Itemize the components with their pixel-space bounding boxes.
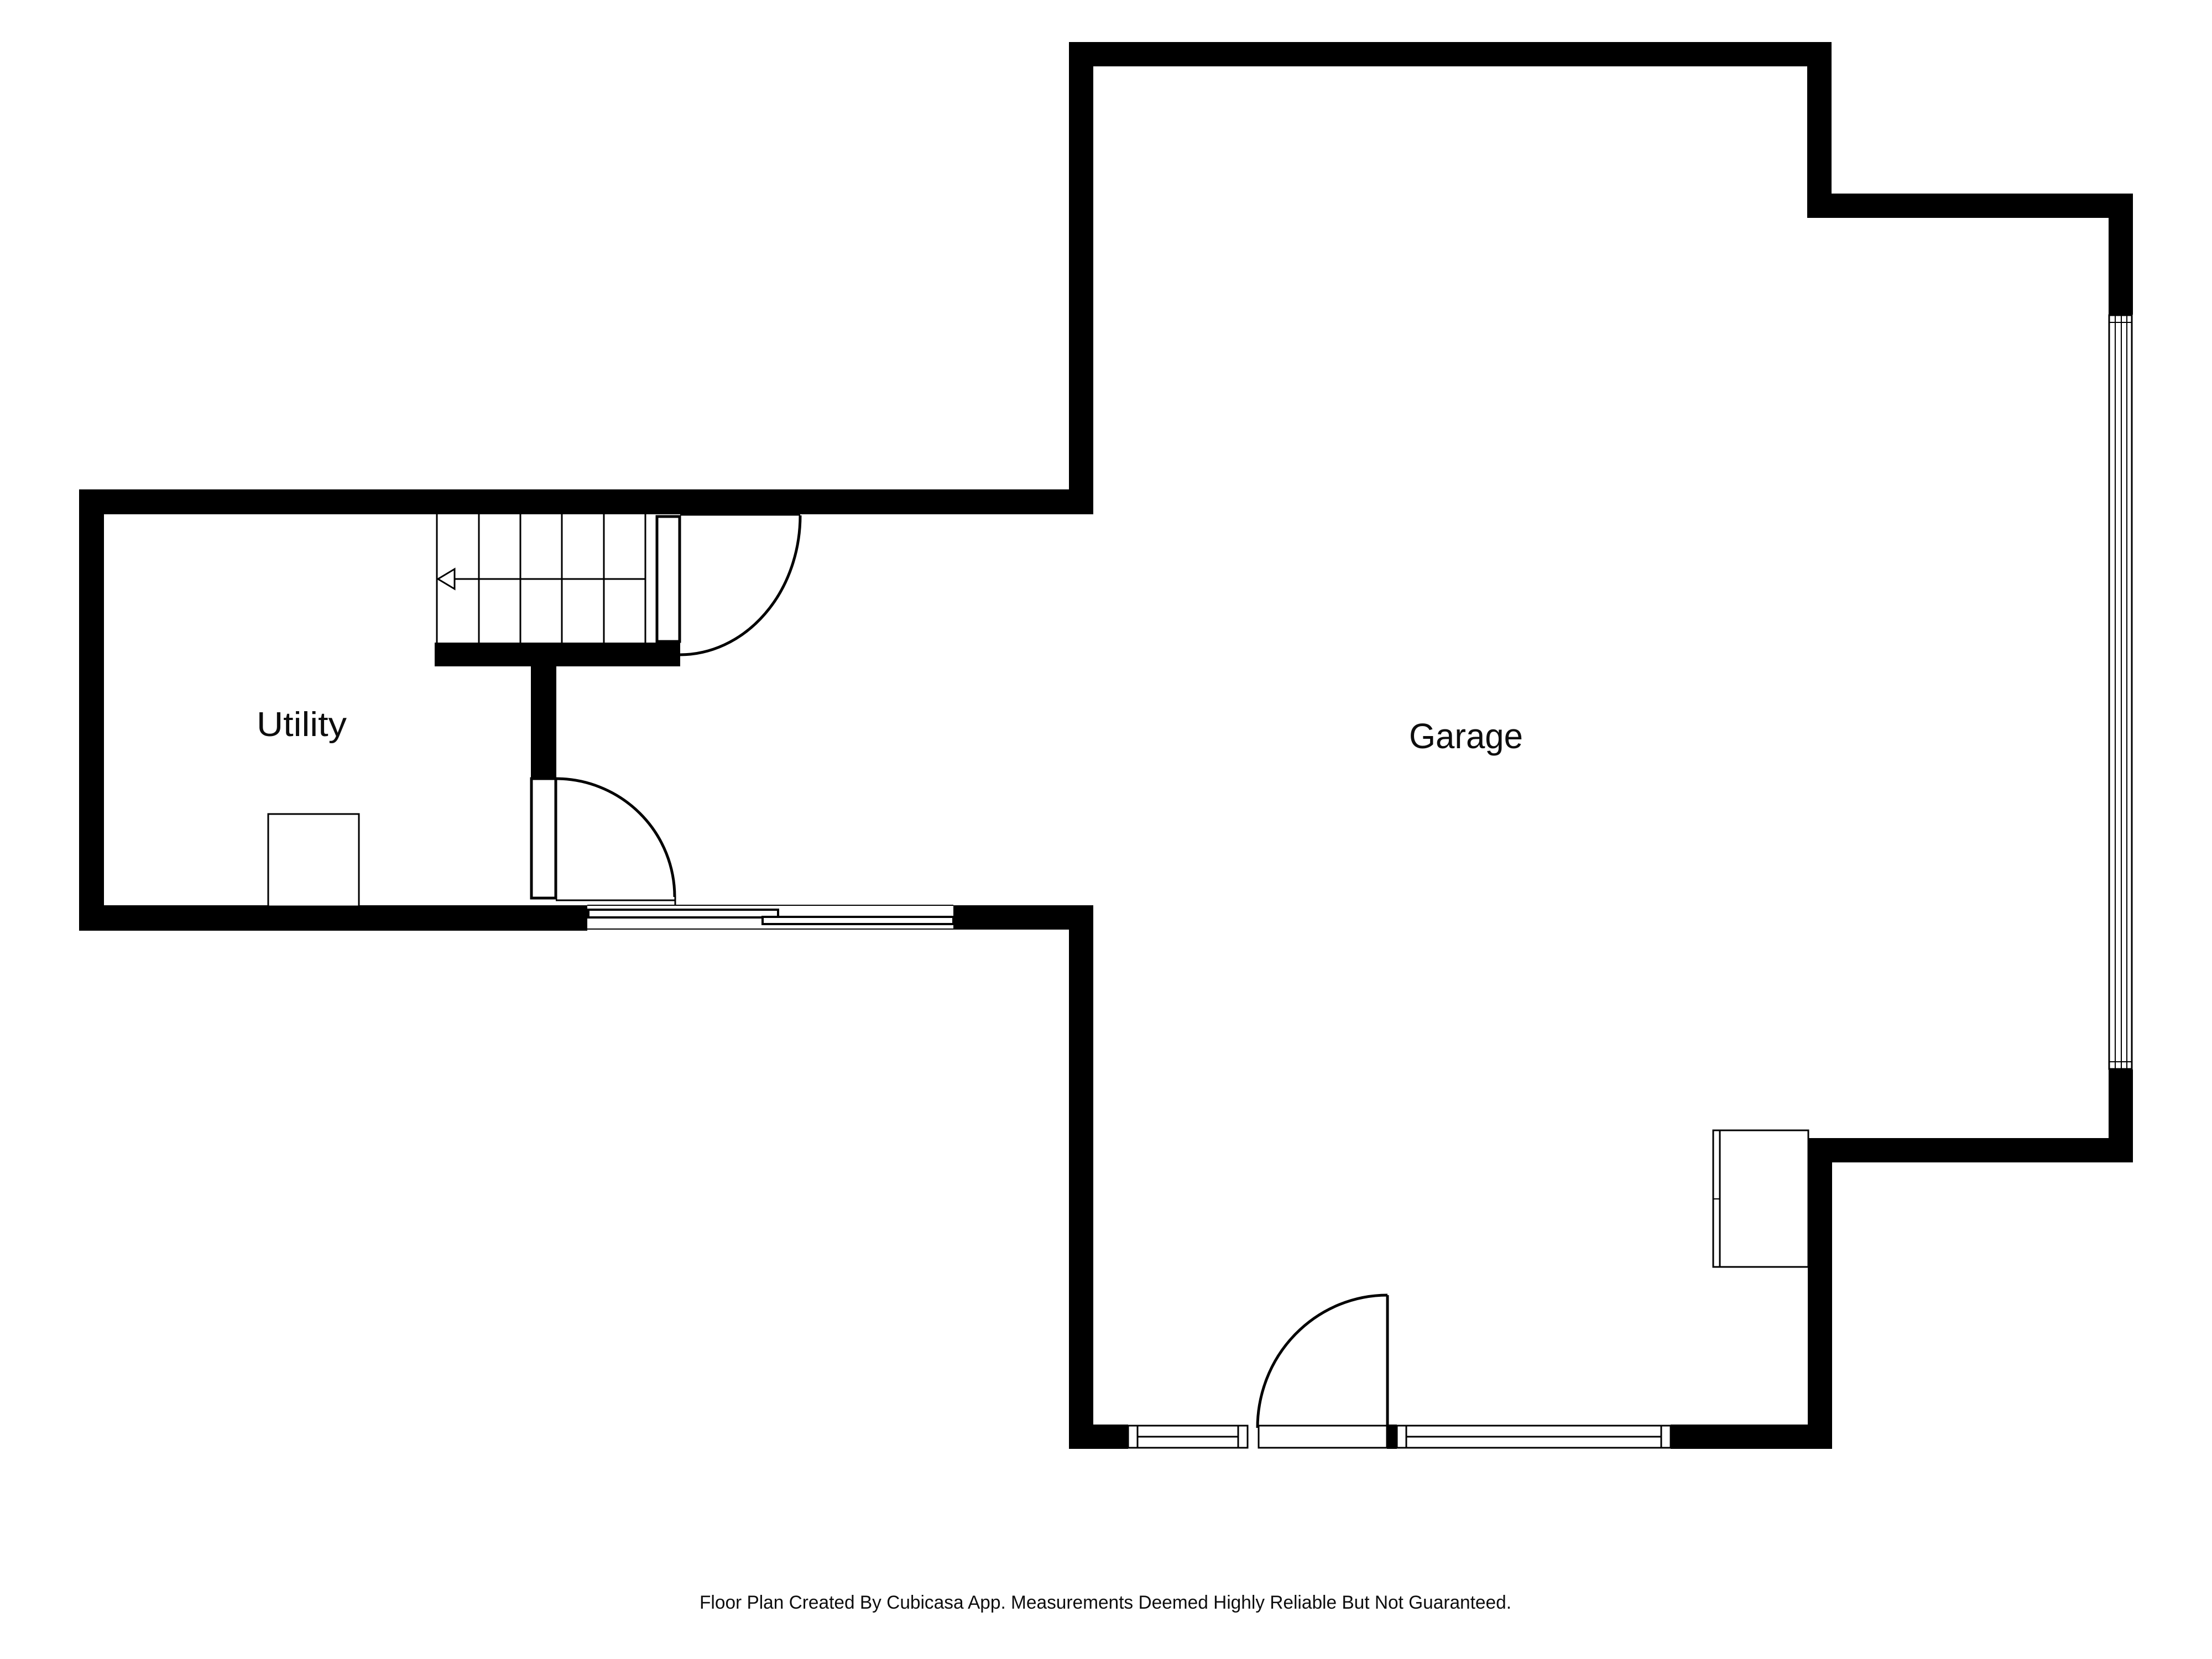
svg-text:Utility: Utility xyxy=(257,706,347,744)
svg-text:Garage: Garage xyxy=(1409,716,1523,756)
svg-text:Floor Plan Created By Cubicasa: Floor Plan Created By Cubicasa App. Meas… xyxy=(700,1592,1511,1613)
